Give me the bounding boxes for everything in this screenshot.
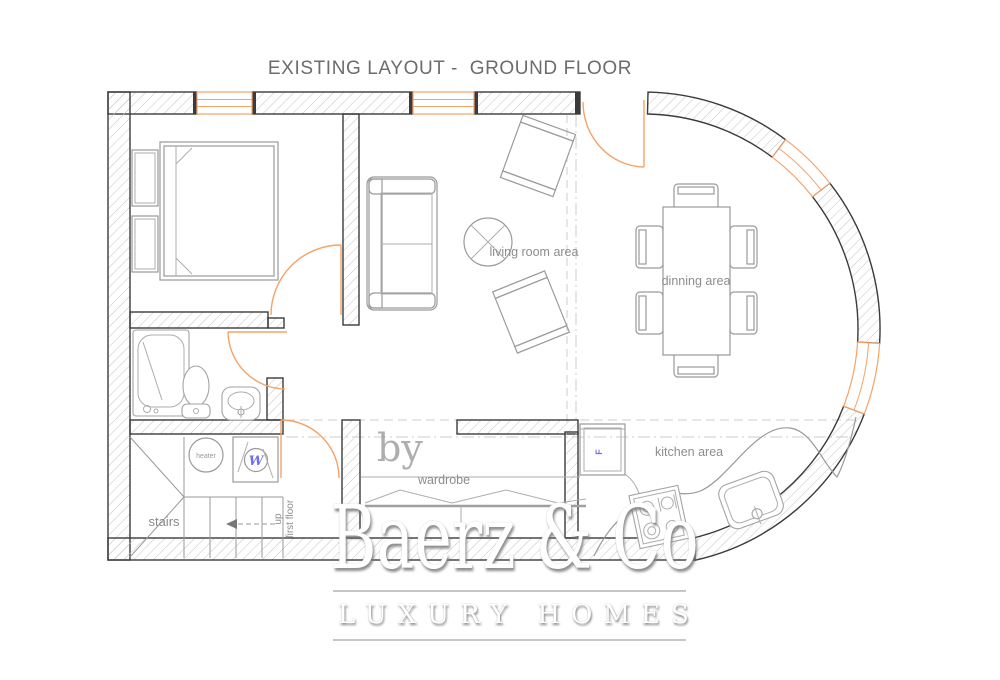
washing-machine: W	[233, 437, 278, 482]
window-curve-1	[772, 140, 829, 197]
stairs-direction-label: up first floor	[273, 499, 296, 538]
fridge-label: F	[594, 449, 604, 455]
bathroom	[133, 330, 260, 420]
wardrobe-label: wardrobe	[417, 473, 470, 487]
svg-text:first floor: first floor	[285, 499, 296, 538]
window-top-2	[413, 92, 474, 114]
hallway-door	[281, 420, 339, 478]
wall-top-2	[252, 92, 413, 114]
bedroom-bottom-wall	[130, 312, 268, 328]
watermark-tagline: LUXURY HOMES	[338, 600, 700, 630]
svg-text:up: up	[273, 513, 284, 525]
toilet	[182, 366, 210, 418]
living-room-label: living room area	[490, 245, 579, 259]
watermark-prefix: by	[377, 426, 423, 470]
nightstand-bottom	[132, 216, 158, 272]
dining-chair-bottom	[674, 352, 718, 377]
dining-label: dinning area	[662, 274, 731, 288]
curved-wall-segment-2	[812, 183, 880, 343]
stairs-label: stairs	[148, 514, 180, 529]
watermark-brand: Baerz & Co	[330, 486, 699, 589]
watermark-rule-bottom	[333, 639, 686, 641]
dining-chair-top	[674, 184, 718, 209]
stairs-up-arrow	[226, 519, 237, 529]
washer-label: W	[249, 454, 265, 469]
dining-area: dinning area	[636, 184, 757, 377]
fridge: F	[580, 424, 625, 475]
bidet	[222, 387, 260, 420]
armchair-2	[493, 271, 570, 353]
bedroom-right-wall	[343, 114, 359, 325]
bathroom-bottom-wall	[130, 420, 283, 434]
kitchen-label: kitchen area	[655, 445, 723, 459]
watermark-rule-top	[333, 590, 686, 592]
dining-chair-right-1	[730, 226, 757, 268]
bathtub	[133, 330, 189, 416]
bathroom-right-wall	[267, 378, 283, 420]
entry-door	[583, 100, 644, 167]
curved-wall-segment-1	[648, 92, 786, 157]
floor-plan-page: EXISTING LAYOUT - GROUND FLOOR	[0, 0, 1000, 680]
wall-top-3	[474, 92, 580, 114]
dining-chair-right-2	[730, 292, 757, 334]
dining-chair-left-2	[636, 292, 663, 334]
window-top-1	[197, 92, 252, 114]
living-room: living room area	[367, 115, 579, 353]
utility-corner: heater W	[189, 437, 278, 482]
heater-label: heater	[196, 453, 217, 460]
nightstand-top	[132, 150, 158, 206]
plan-title: EXISTING LAYOUT - GROUND FLOOR	[230, 58, 670, 80]
wardrobe-top-wall	[457, 420, 578, 434]
wall-left	[108, 92, 130, 560]
dining-chair-left-1	[636, 226, 663, 268]
armchair-1	[500, 115, 575, 196]
sofa	[367, 177, 437, 310]
bedroom-door	[271, 245, 341, 315]
bedroom	[132, 142, 278, 280]
window-curve-2	[844, 342, 880, 414]
